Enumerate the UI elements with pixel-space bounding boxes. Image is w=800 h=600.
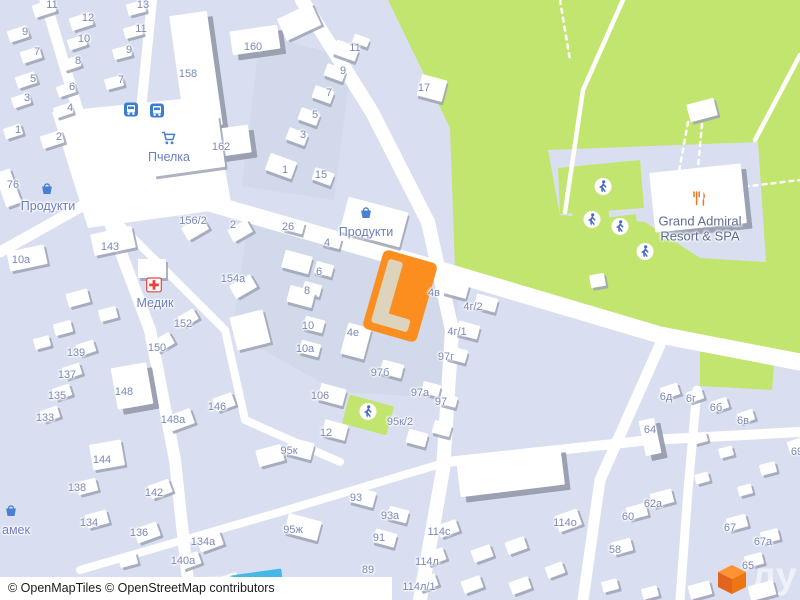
building-number-label: 162	[212, 141, 230, 153]
building-number-label: 135	[48, 390, 66, 402]
building-number-label: 114л	[415, 556, 439, 568]
poi-label: Продукти	[339, 225, 393, 239]
building-number-label: 97	[435, 396, 447, 408]
building	[588, 272, 605, 287]
building-number-label: 4г/2	[463, 301, 482, 313]
pedestrian-icon	[594, 178, 612, 201]
building-number-label: 6	[69, 81, 75, 93]
building-number-label: 60	[622, 511, 634, 523]
building-number-label: 154a	[221, 273, 245, 285]
building-number-label: 143	[101, 241, 119, 253]
building-number-label: 69	[791, 446, 800, 458]
building	[138, 259, 166, 278]
restaurant-icon	[691, 191, 707, 211]
building-number-label: 3	[24, 92, 30, 104]
building-number-label: 106	[311, 390, 329, 402]
building-number-label: 26	[282, 221, 294, 233]
pedestrian-icon	[583, 211, 601, 234]
map-canvas[interactable]: 1197531121086421311971581601627611975311…	[0, 0, 800, 600]
pedestrian-icon	[636, 243, 654, 266]
building-number-label: 7	[326, 87, 332, 99]
pedestrian-icon	[611, 218, 629, 241]
building-number-label: 13	[137, 0, 149, 11]
pedestrian-icon	[359, 403, 377, 426]
building-number-label: 6д	[660, 391, 673, 403]
building-number-label: 140а	[171, 555, 195, 567]
building-number-label: 6	[316, 266, 322, 278]
building-number-label: 114о	[553, 517, 577, 529]
building-number-label: 133	[36, 412, 54, 424]
highlighted-building-footprint	[371, 309, 411, 332]
building-number-label: 3	[300, 129, 306, 141]
building-number-label: 4	[324, 237, 330, 249]
building-number-label: 11	[349, 42, 360, 54]
building-number-label: 4г/1	[447, 326, 466, 338]
cart-icon	[161, 131, 177, 151]
poi-label: Продукти	[21, 199, 75, 213]
bus-stop-icon	[124, 103, 138, 122]
building-number-label: 15	[315, 169, 327, 181]
building-number-label: 158	[179, 68, 197, 80]
building-number-label: 97г	[438, 351, 454, 363]
building-number-label: 137	[58, 369, 76, 381]
building-number-label: 2	[230, 219, 236, 231]
building-number-label: 138	[68, 482, 86, 494]
building-number-label: 4в	[428, 287, 440, 299]
building-number-label: 7	[118, 74, 124, 86]
building-number-label: 93	[350, 492, 362, 504]
building-number-label: 10	[302, 320, 314, 332]
building-number-label: 160	[244, 41, 262, 53]
poi-label: Медик	[137, 296, 174, 310]
building-number-label: 2	[56, 131, 62, 143]
building-number-label: 89	[362, 564, 374, 576]
building-number-label: 114л/1	[402, 581, 435, 593]
building-number-label: 93а	[381, 510, 399, 522]
building-number-label: 6в	[737, 415, 749, 427]
basket-icon	[359, 206, 374, 225]
basket-icon	[4, 504, 19, 523]
poi-label: амек	[2, 523, 30, 537]
building-number-label: 8	[75, 55, 81, 67]
basket-icon	[40, 182, 55, 201]
poi-label: Пчелка	[148, 150, 190, 164]
building-number-label: 150	[148, 342, 166, 354]
building-number-label: 62а	[644, 498, 662, 510]
building-number-label: 1	[15, 124, 21, 136]
building-number-label: 76	[7, 179, 19, 191]
building-number-label: 9	[340, 65, 346, 77]
building-number-label: 58	[609, 544, 621, 556]
building-number-label: 11	[46, 0, 57, 11]
building-number-label: 148а	[161, 414, 185, 426]
building-number-label: 5	[30, 73, 36, 85]
building-number-label: 1	[282, 164, 288, 176]
road	[680, 390, 697, 600]
building-number-label: 136	[130, 527, 148, 539]
attribution-text[interactable]: © OpenMapTiles © OpenStreetMap contribut…	[8, 581, 275, 595]
road	[583, 345, 660, 600]
road	[140, 0, 152, 120]
resort-label: Resort & SPA	[660, 229, 739, 244]
building-number-label: 114с	[427, 526, 450, 538]
building-number-label: 134	[80, 517, 98, 529]
building-number-label: 67а	[754, 536, 772, 548]
building-number-label: 146	[208, 401, 226, 413]
building-number-label: 64	[644, 424, 656, 436]
building-number-label: 144	[93, 454, 111, 466]
building-number-label: 139	[67, 347, 85, 359]
building-number-label: 142	[145, 487, 163, 499]
building-number-label: 5	[312, 109, 318, 121]
building-number-label: 148	[115, 386, 133, 398]
map-attribution[interactable]: © OpenMapTiles © OpenStreetMap contribut…	[0, 577, 392, 600]
building-number-label: 6г	[686, 393, 696, 405]
building-number-label: 12	[82, 12, 94, 24]
building-number-label: 8	[304, 285, 310, 297]
building-number-label: 17	[418, 82, 430, 94]
building-number-label: 91	[373, 532, 385, 544]
building-number-label: 97а	[411, 387, 429, 399]
building-number-label: 95к	[280, 445, 297, 457]
building-number-label: 10	[78, 33, 90, 45]
building-number-label: 7	[34, 46, 40, 58]
lun-logo[interactable]: лун	[716, 563, 800, 600]
building-number-label: 156/2	[179, 215, 207, 227]
building-number-label: 11	[135, 23, 146, 35]
building-number-label: 95ж	[283, 524, 303, 536]
medical-icon	[146, 277, 162, 298]
bus-stop-icon	[150, 104, 164, 123]
building-number-label: 10a	[296, 343, 314, 355]
building-number-label: 95к/2	[387, 416, 413, 428]
building-number-label: 134а	[191, 536, 215, 548]
building-number-label: 97б	[371, 367, 390, 379]
building-number-label: 10a	[12, 254, 30, 266]
building-number-label: 4	[67, 102, 73, 114]
building-number-label: 67	[724, 522, 736, 534]
building-number-label: 9	[126, 44, 132, 56]
building-number-label: 4е	[347, 327, 359, 339]
building-number-label: 9	[22, 26, 28, 38]
building-number-label: 6б	[710, 402, 722, 414]
lun-cube-icon	[716, 563, 748, 595]
resort-label: Grand Admiral	[658, 214, 741, 229]
building-number-label: 12	[320, 427, 332, 439]
building-number-label: 152	[174, 318, 192, 330]
lun-logo-text: лун	[752, 555, 800, 597]
